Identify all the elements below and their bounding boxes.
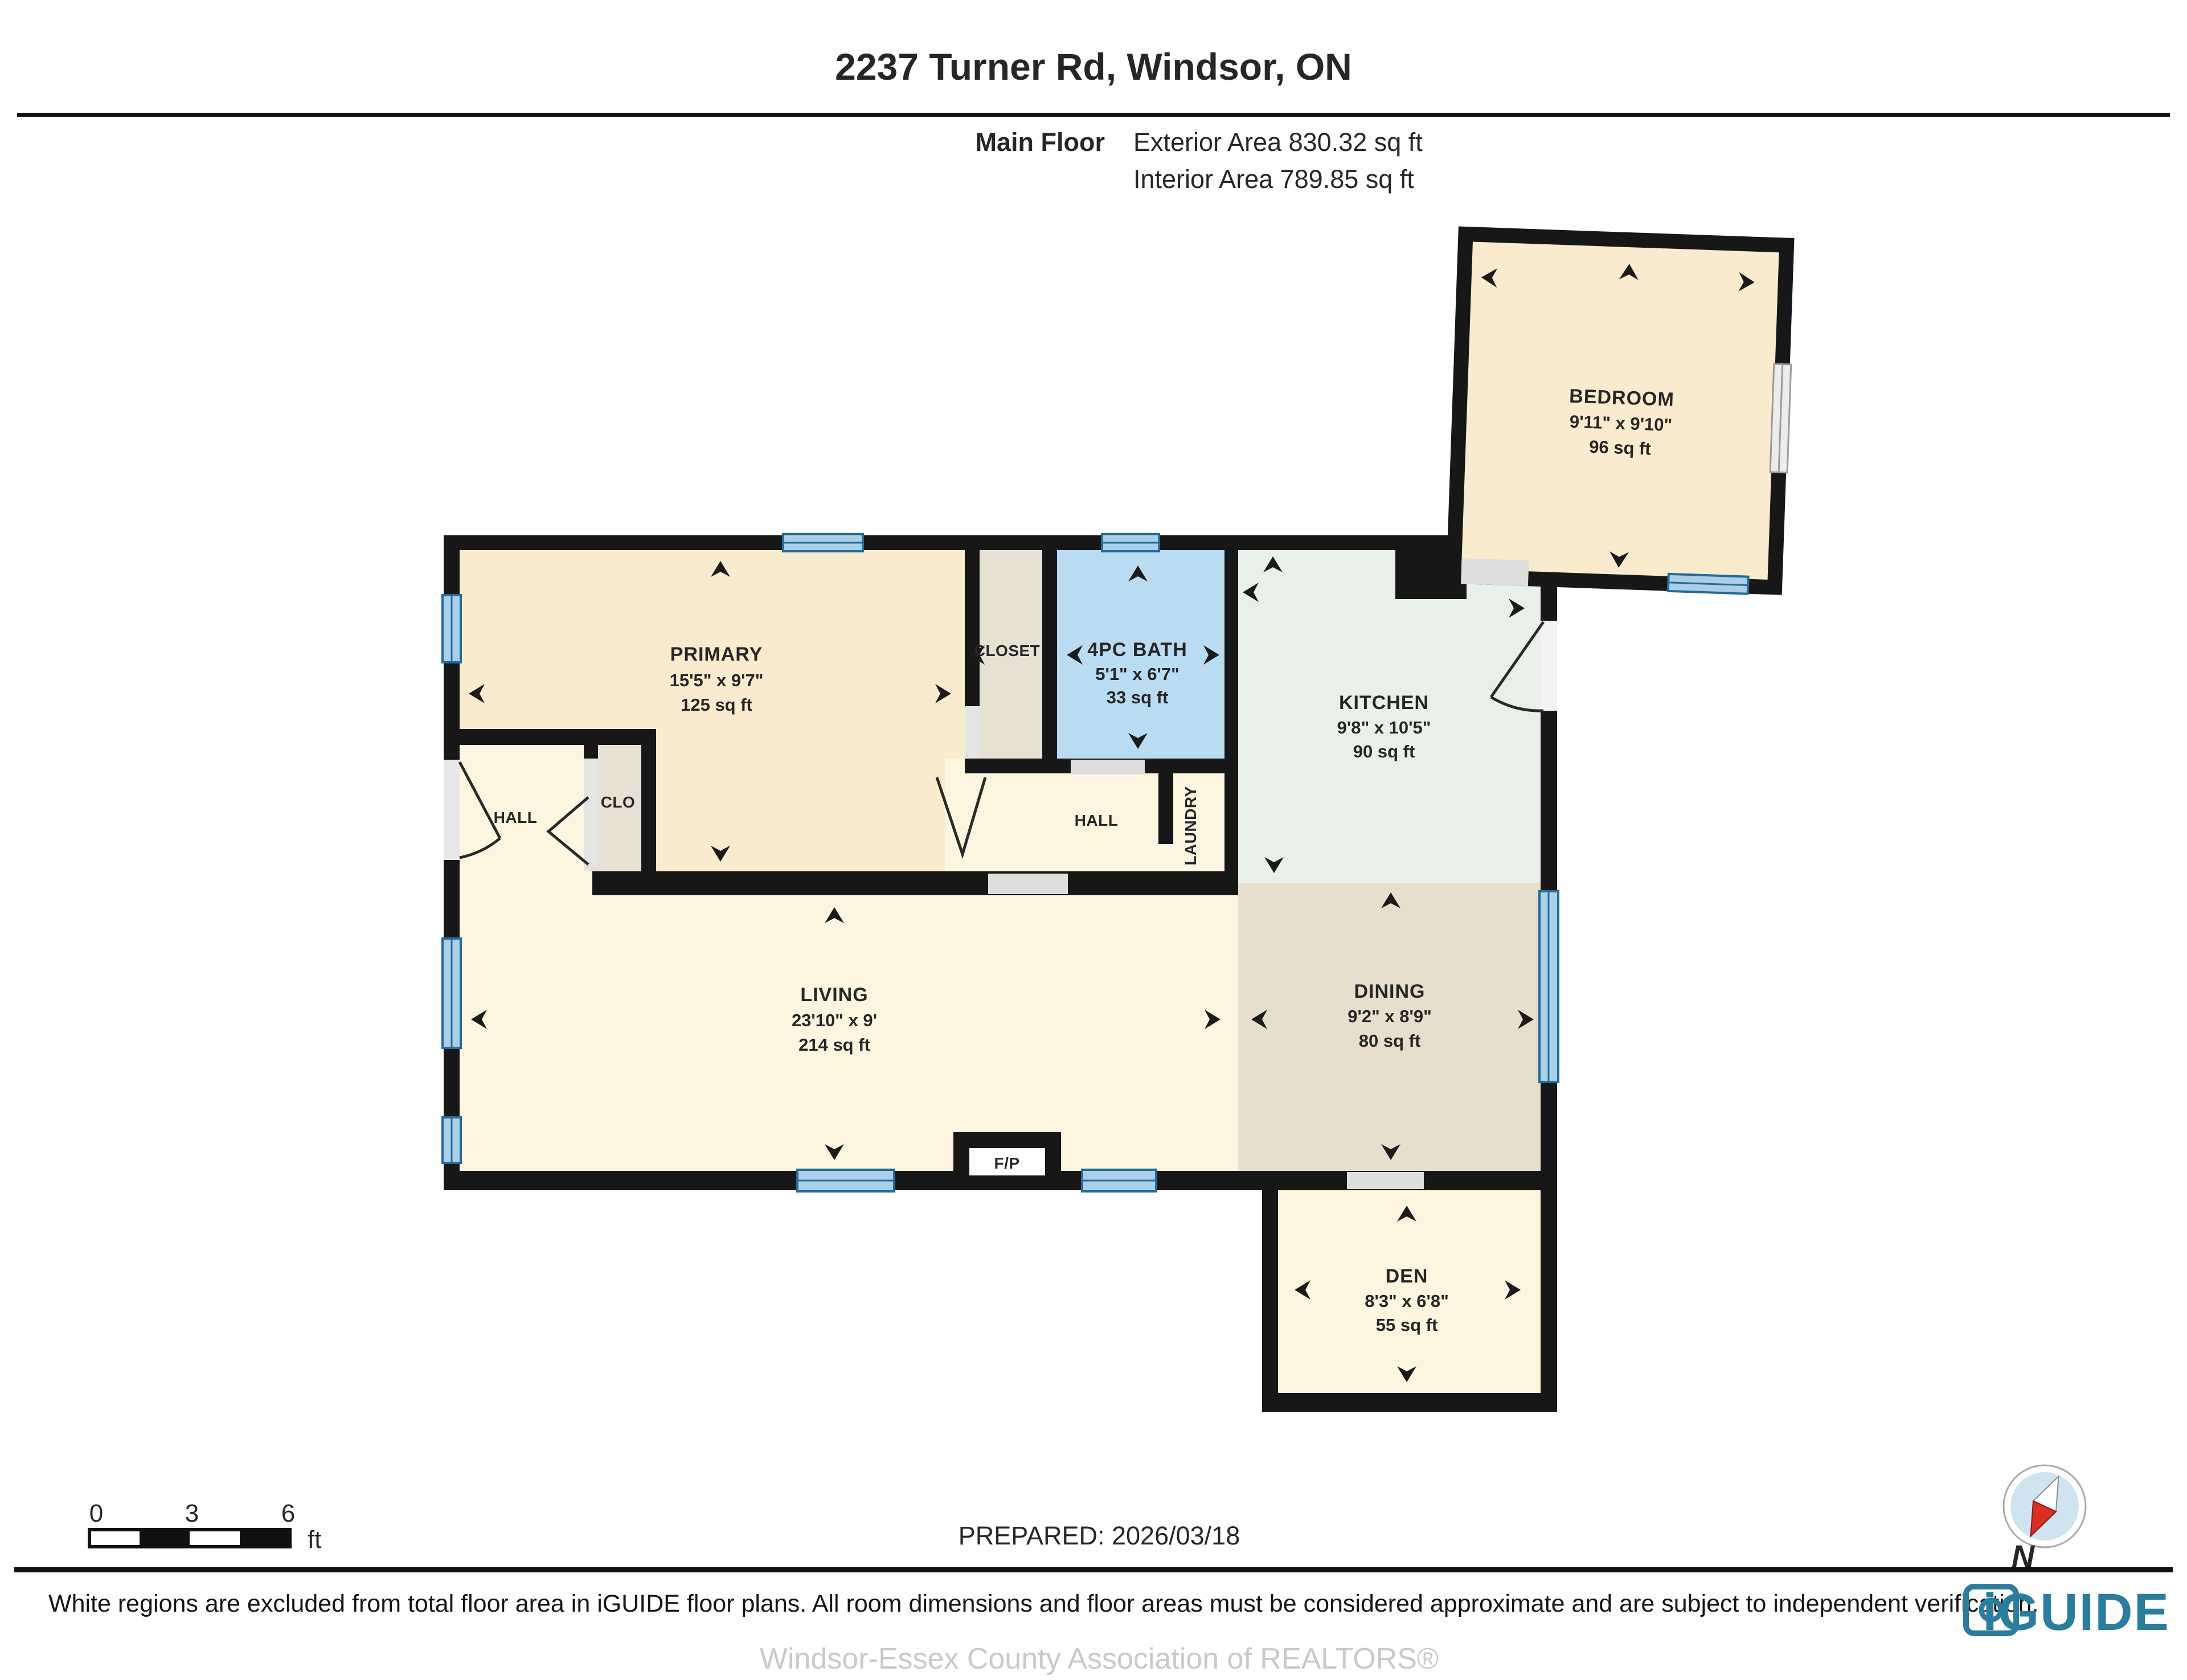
svg-text:9'8" x 10'5": 9'8" x 10'5": [1337, 718, 1431, 737]
window: [1102, 534, 1159, 551]
svg-text:96 sq ft: 96 sq ft: [1589, 437, 1652, 459]
laundry-label: LAUNDRY: [1182, 786, 1199, 865]
kitchen-exterior-door-opening: [1541, 621, 1557, 711]
room-label-living: LIVING 23'10" x 9' 214 sq ft: [792, 984, 877, 1055]
iguide-logo: iGUIDE: [1966, 1583, 2170, 1641]
watermark: Windsor-Essex County Association of REAL…: [760, 1642, 1439, 1675]
closet-label: CLOSET: [974, 642, 1041, 659]
room-label-dining: DINING 9'2" x 8'9" 80 sq ft: [1348, 981, 1432, 1051]
closet-opening: [965, 706, 980, 759]
clo-door-jamb: [584, 759, 598, 867]
window: [797, 1170, 894, 1191]
svg-text:8'3" x 6'8": 8'3" x 6'8": [1365, 1291, 1449, 1311]
header-rule: [17, 113, 2170, 117]
floor-label: Main Floor: [976, 128, 1105, 157]
window: [1668, 574, 1748, 594]
prepared-date: PREPARED: 2026/03/18: [959, 1521, 1240, 1550]
interior-area: Interior Area 789.85 sq ft: [1133, 165, 1414, 194]
svg-text:90 sq ft: 90 sq ft: [1353, 741, 1415, 761]
svg-text:80 sq ft: 80 sq ft: [1359, 1031, 1421, 1051]
wall-hall-top: [444, 729, 656, 745]
svg-text:125 sq ft: 125 sq ft: [681, 695, 752, 715]
room-dining: [1238, 883, 1541, 1171]
hall-center-label: HALL: [1075, 812, 1119, 829]
scale-tick: 0: [89, 1499, 103, 1527]
floor-plan-image: 2237 Turner Rd, Windsor, ON Main Floor E…: [0, 0, 2187, 1680]
footer-rule: [14, 1567, 2173, 1572]
wall-den-right: [1541, 1190, 1557, 1412]
svg-text:BEDROOM: BEDROOM: [1569, 386, 1675, 411]
window: [1539, 891, 1558, 1082]
svg-text:4PC BATH: 4PC BATH: [1087, 639, 1187, 661]
wall-den-left: [1262, 1190, 1278, 1412]
wall-den-bottom: [1262, 1393, 1557, 1412]
bath-door-threshold: [1071, 760, 1145, 775]
fireplace: F/P: [953, 1132, 1061, 1190]
svg-text:KITCHEN: KITCHEN: [1339, 692, 1429, 714]
svg-text:9'2" x 8'9": 9'2" x 8'9": [1348, 1006, 1432, 1026]
scale-unit: ft: [308, 1526, 321, 1554]
disclaimer-text: White regions are excluded from total fl…: [48, 1590, 2038, 1617]
wall-laundry-divider: [1158, 773, 1173, 844]
den-door-threshold: [1347, 1172, 1424, 1189]
wall-kitchen-left: [1224, 535, 1238, 895]
exterior-area: Exterior Area 830.32 sq ft: [1133, 128, 1423, 157]
window: [443, 939, 461, 1048]
scale-tick: 6: [281, 1499, 295, 1527]
window: [783, 534, 863, 551]
svg-text:23'10" x 9': 23'10" x 9': [792, 1010, 877, 1030]
bedroom-doorway: [1461, 558, 1529, 586]
bedroom-wing: BEDROOM 9'11" x 9'10" 96 sq ft: [1446, 227, 1796, 595]
svg-text:55 sq ft: 55 sq ft: [1376, 1315, 1438, 1335]
svg-text:15'5" x 9'7": 15'5" x 9'7": [670, 670, 764, 690]
svg-text:214 sq ft: 214 sq ft: [798, 1035, 870, 1055]
bedroom-side-window: [1770, 364, 1791, 473]
svg-text:LIVING: LIVING: [800, 984, 868, 1006]
hall-left-label: HALL: [494, 809, 538, 826]
svg-text:PRIMARY: PRIMARY: [670, 644, 763, 665]
scale-bar-segment: [240, 1530, 290, 1547]
clo-label: CLO: [601, 793, 636, 811]
hall-living-threshold: [988, 874, 1068, 894]
svg-text:33 sq ft: 33 sq ft: [1107, 687, 1169, 707]
svg-text:DINING: DINING: [1354, 981, 1426, 1002]
room-label-primary: PRIMARY 15'5" x 9'7" 125 sq ft: [670, 644, 764, 715]
svg-text:5'1" x 6'7": 5'1" x 6'7": [1095, 664, 1179, 684]
room-kitchen: [1238, 550, 1541, 883]
window: [1082, 1170, 1156, 1191]
wall-living-top: [592, 871, 1238, 895]
fireplace-label: F/P: [994, 1154, 1019, 1172]
svg-text:DEN: DEN: [1386, 1265, 1428, 1287]
scale-tick: 3: [185, 1499, 199, 1527]
scale-bar-segment: [140, 1530, 190, 1547]
wall-clo-left-stub: [584, 745, 598, 760]
room-bedroom: [1461, 241, 1779, 579]
page-title: 2237 Turner Rd, Windsor, ON: [835, 46, 1352, 88]
window: [443, 595, 461, 662]
hall-exterior-door-opening: [444, 760, 460, 860]
wall-top: [444, 535, 1395, 550]
svg-text:9'11" x 9'10": 9'11" x 9'10": [1569, 412, 1672, 435]
wall-closet-bath-divider: [1042, 550, 1057, 759]
iguide-logo-text: iGUIDE: [1983, 1583, 2170, 1641]
window: [443, 1117, 461, 1163]
